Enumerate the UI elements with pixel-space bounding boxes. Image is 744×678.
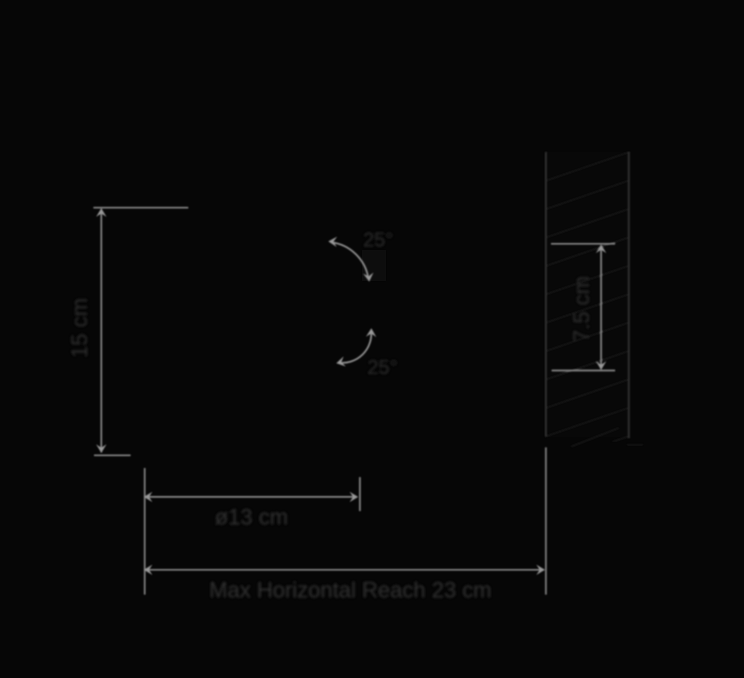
svg-text:15 cm: 15 cm bbox=[67, 298, 92, 358]
svg-text:25°: 25° bbox=[367, 357, 397, 379]
svg-text:7.5 cm: 7.5 cm bbox=[569, 276, 594, 342]
svg-text:ø13 cm: ø13 cm bbox=[215, 505, 288, 530]
svg-text:Max Horizontal Reach 23 cm: Max Horizontal Reach 23 cm bbox=[209, 578, 491, 603]
svg-text:25°: 25° bbox=[363, 230, 393, 252]
